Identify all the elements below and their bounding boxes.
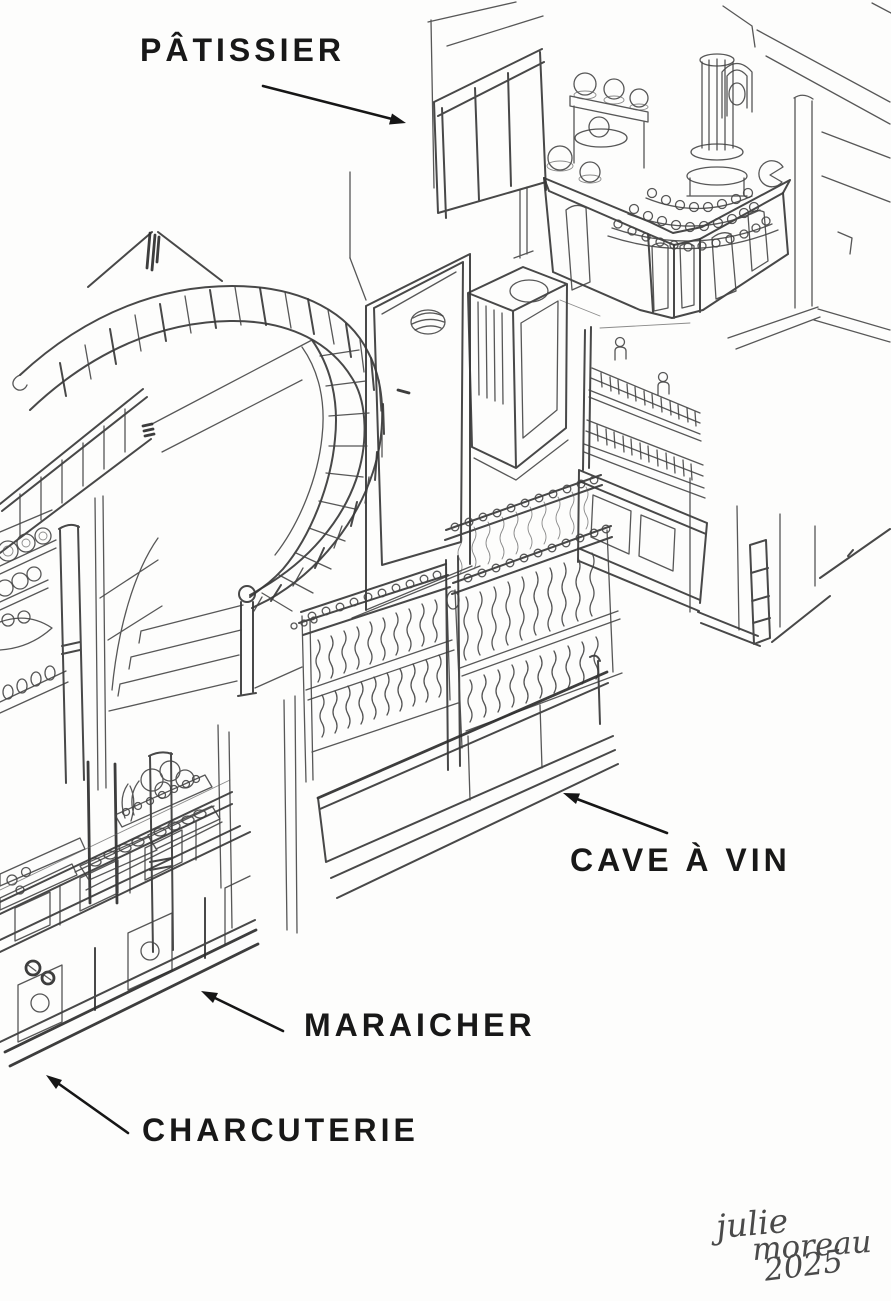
spiral-staircase-sketch <box>0 286 384 711</box>
wall-lines-sketch <box>350 2 891 349</box>
ceiling-mark-sketch <box>88 232 222 287</box>
wine-racks-sketch <box>255 475 622 898</box>
label-maraicher: MARAICHER <box>304 1009 536 1041</box>
door-sketch <box>350 254 480 618</box>
cave-a-vin-arrow <box>563 793 667 833</box>
charcuterie-arrow <box>46 1075 128 1133</box>
produce-counter-sketch <box>0 696 297 1066</box>
wine-shelf-sketch <box>578 327 707 611</box>
service-counter-sketch <box>468 267 568 480</box>
maraicher-arrow <box>201 991 283 1031</box>
patissier-arrow <box>263 86 406 125</box>
label-patissier: PÂTISSIER <box>140 34 345 66</box>
label-charcuterie: CHARCUTERIE <box>142 1114 419 1146</box>
market-hall-sketch <box>0 0 891 1301</box>
patisserie-stand-sketch <box>544 54 790 328</box>
partition-screen-sketch <box>434 49 546 258</box>
sketch-page: PÂTISSIER CAVE À VIN MARAICHER CHARCUTER… <box>0 0 891 1301</box>
corner-post-sketch <box>690 478 890 646</box>
label-cave-a-vin: CAVE À VIN <box>570 844 791 876</box>
